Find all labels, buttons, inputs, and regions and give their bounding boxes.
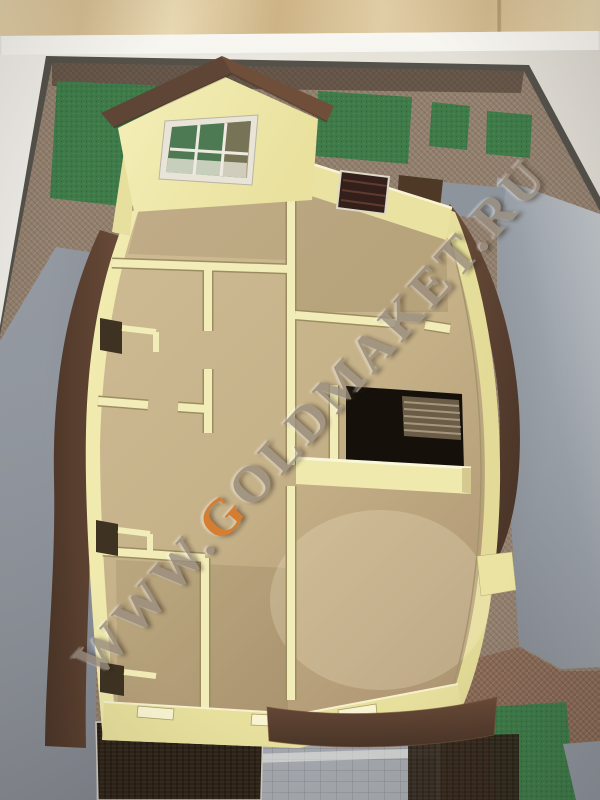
grass-patch-top-right-2 xyxy=(486,111,532,158)
wall-corner-wedge xyxy=(477,552,516,596)
gable-window xyxy=(159,115,258,185)
grass-patch-top-center xyxy=(316,91,412,164)
model-scene xyxy=(0,0,600,800)
model-photo: WWW.GOLDMAKET.RU xyxy=(0,0,600,800)
grass-patch-top-right-1 xyxy=(429,102,470,150)
stair-parapet-endcap xyxy=(462,468,471,494)
room-highlight-bottom-right xyxy=(270,510,490,690)
